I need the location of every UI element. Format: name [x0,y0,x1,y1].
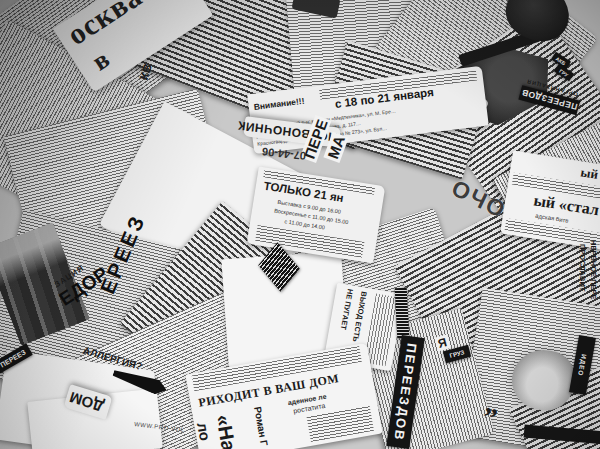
vertical-headline: НЕРВНОЕ ПЕРЕ [589,240,597,302]
stal-fragment: ый [580,165,599,181]
masthead-text-2: в [88,46,114,75]
fine-print [306,405,374,442]
gruz-text: ГРУЗ [449,349,465,359]
black-column-bar [395,288,410,339]
vertical-word-big: «На [213,413,239,449]
vertical-author-name: Роман Г [252,406,269,447]
pere-text-2: МА [323,132,348,163]
attention-title: Внимание!!! [253,97,305,112]
vertical-word-small: ло [195,421,213,442]
stal-subline: адская битв [535,213,569,224]
newspaper-collage: осква в кв Внимание!!! с 18 по 21 января… [0,0,600,449]
video-strip-text: ИДЕО [577,353,588,377]
clipping-stal-headline: ый ый «стал адская битв [500,150,600,249]
vertical-headline: ПРОСЛАВИТ [578,244,586,302]
